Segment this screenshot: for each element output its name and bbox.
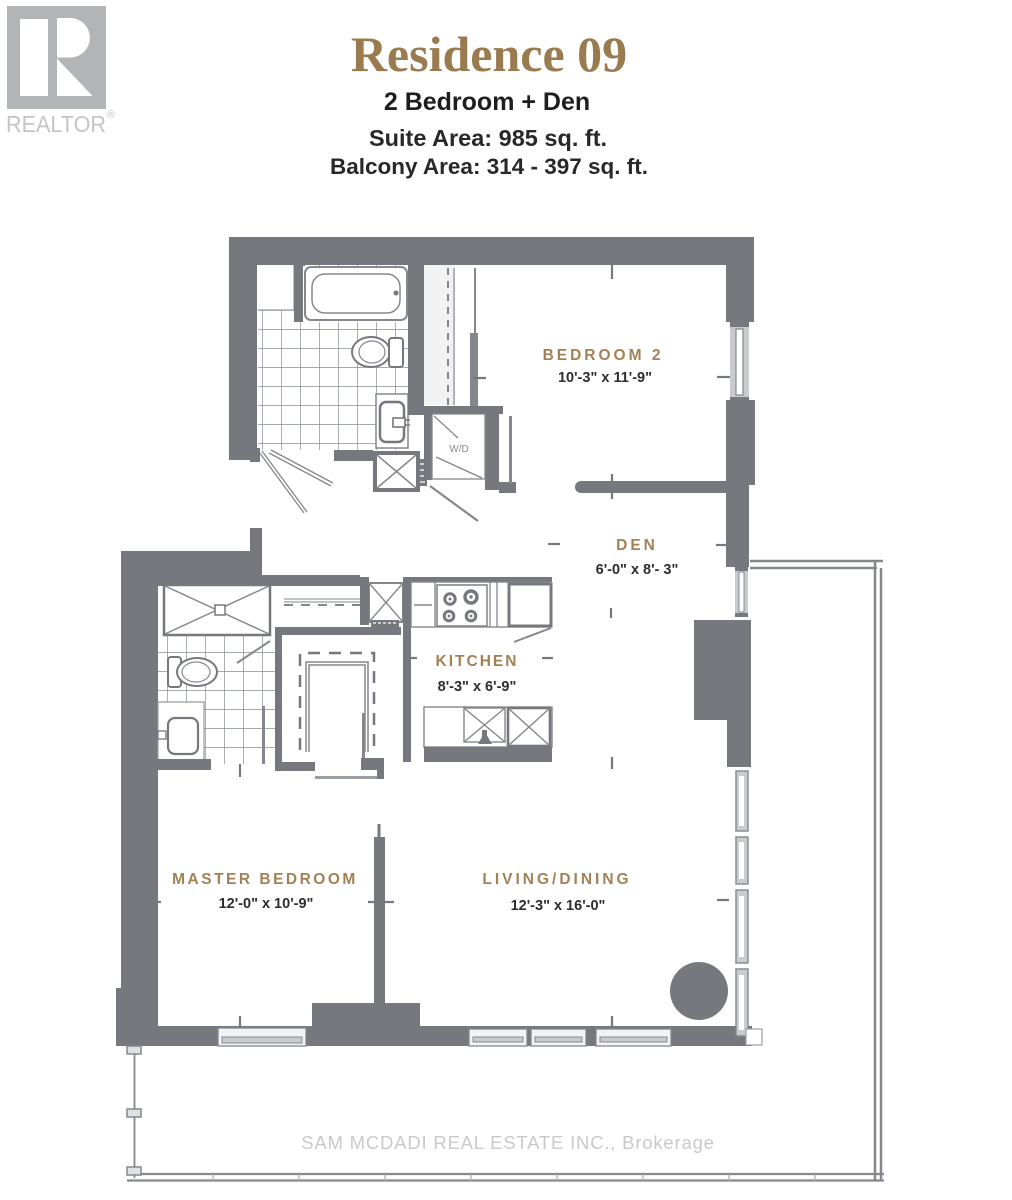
svg-text:®: ® (107, 109, 115, 121)
svg-text:10'-3" x 11'-9": 10'-3" x 11'-9" (558, 370, 652, 386)
svg-text:W/D: W/D (449, 444, 468, 455)
svg-text:6'-0" x 8'- 3": 6'-0" x 8'- 3" (596, 562, 679, 578)
svg-text:8'-3" x 6'-9": 8'-3" x 6'-9" (438, 679, 517, 695)
svg-text:SAM MCDADI REAL ESTATE INC., B: SAM MCDADI REAL ESTATE INC., Brokerage (301, 1132, 715, 1153)
svg-text:DEN: DEN (616, 537, 658, 554)
svg-text:REALTOR: REALTOR (6, 111, 106, 137)
svg-text:BEDROOM 2: BEDROOM 2 (543, 347, 664, 364)
svg-text:LIVING/DINING: LIVING/DINING (482, 871, 631, 888)
svg-text:KITCHEN: KITCHEN (436, 653, 519, 670)
svg-text:Balcony Area: 314 - 397 sq. ft: Balcony Area: 314 - 397 sq. ft. (330, 154, 648, 179)
svg-text:Residence 09: Residence 09 (351, 26, 627, 82)
svg-text:Suite Area: 985 sq. ft.: Suite Area: 985 sq. ft. (369, 125, 607, 151)
svg-text:12'-0" x 10'-9": 12'-0" x 10'-9" (219, 896, 314, 912)
svg-text:12'-3" x 16'-0": 12'-3" x 16'-0" (511, 898, 606, 914)
svg-text:2 Bedroom + Den: 2 Bedroom + Den (384, 88, 590, 116)
svg-text:MASTER BEDROOM: MASTER BEDROOM (172, 871, 358, 888)
